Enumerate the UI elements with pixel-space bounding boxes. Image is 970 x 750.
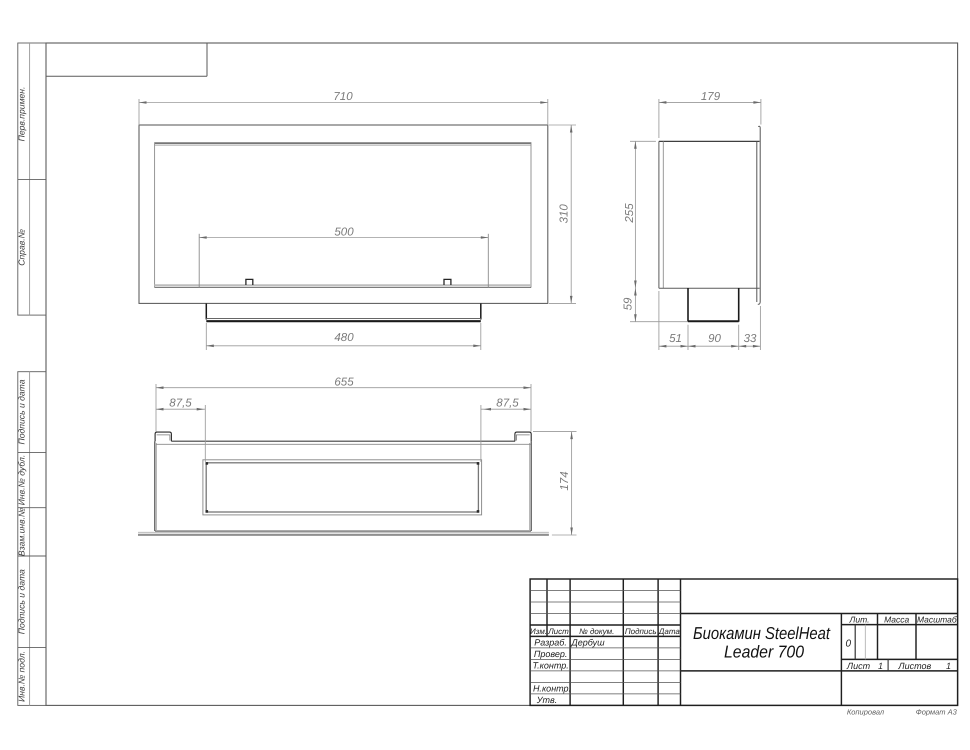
svg-text:Провер.: Провер. [534,649,568,659]
svg-text:Leader 700: Leader 700 [724,642,804,662]
svg-text:Инв.№ подл.: Инв.№ подл. [16,651,26,702]
svg-text:1: 1 [878,661,883,671]
svg-text:179: 179 [701,91,721,103]
svg-text:59: 59 [623,297,635,310]
svg-text:87,5: 87,5 [496,397,519,409]
svg-text:Н.контр.: Н.контр. [533,683,571,693]
svg-text:№ докум.: № докум. [579,627,614,636]
svg-text:Взам.инв.№: Взам.инв.№ [16,508,26,556]
svg-text:Дербуш: Дербуш [570,638,605,648]
svg-text:Перв.примен.: Перв.примен. [16,87,26,142]
svg-text:90: 90 [708,333,721,345]
svg-text:Формат А3: Формат А3 [916,708,958,717]
svg-text:Лист: Лист [547,627,569,636]
svg-text:Масса: Масса [884,614,909,624]
svg-text:Лит.: Лит. [849,614,870,624]
svg-text:Разраб.: Разраб. [534,638,567,648]
svg-text:Подпись и дата: Подпись и дата [16,379,26,444]
svg-text:Лист: Лист [846,661,871,671]
svg-text:310: 310 [558,204,570,224]
svg-text:51: 51 [669,333,682,345]
svg-text:655: 655 [334,377,354,389]
svg-text:Справ.№: Справ.№ [16,229,26,266]
svg-text:Т.контр.: Т.контр. [532,661,568,671]
svg-text:87,5: 87,5 [169,397,192,409]
svg-text:33: 33 [744,333,757,345]
svg-text:Биокамин SteelHeat: Биокамин SteelHeat [693,623,831,643]
svg-text:Листов: Листов [897,661,931,671]
svg-text:Инв.№ дубл.: Инв.№ дубл. [16,455,26,505]
svg-text:480: 480 [334,332,354,344]
svg-text:1: 1 [946,661,951,671]
svg-text:Утв.: Утв. [536,695,557,705]
svg-text:0: 0 [846,639,852,650]
svg-text:Дата: Дата [658,627,681,636]
svg-text:255: 255 [624,203,636,224]
svg-text:Подпись и дата: Подпись и дата [16,569,26,634]
svg-text:710: 710 [333,91,353,103]
svg-text:Копировал: Копировал [847,708,885,717]
svg-text:Масштаб: Масштаб [917,614,958,624]
svg-text:Подпись: Подпись [625,627,657,636]
svg-text:Изм.: Изм. [530,627,547,636]
svg-text:500: 500 [334,227,354,239]
svg-text:174: 174 [559,471,571,490]
